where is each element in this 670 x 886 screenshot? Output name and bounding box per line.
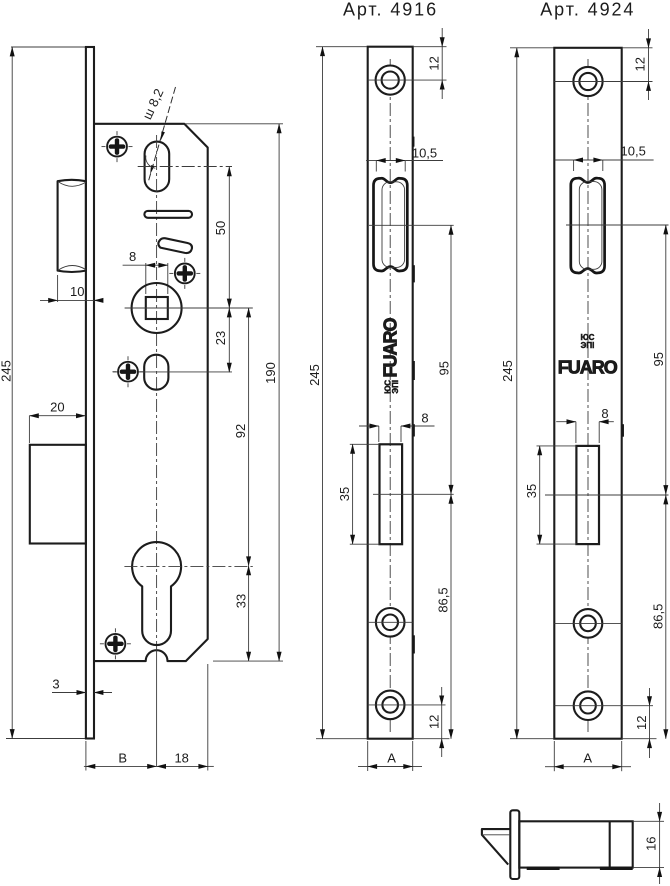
svg-text:8: 8 (421, 410, 428, 425)
svg-text:12: 12 (426, 56, 441, 70)
svg-text:86,5: 86,5 (650, 604, 665, 629)
svg-text:95: 95 (651, 352, 666, 366)
svg-text:35: 35 (524, 484, 539, 498)
svg-text:23: 23 (213, 331, 228, 345)
svg-text:ЭПI: ЭПI (391, 380, 400, 394)
svg-text:16: 16 (644, 836, 659, 850)
svg-text:8: 8 (129, 249, 136, 264)
svg-text:50: 50 (213, 221, 228, 235)
svg-text:FUARO: FUARO (381, 318, 401, 378)
svg-text:12: 12 (426, 715, 441, 729)
svg-text:18: 18 (174, 750, 188, 765)
svg-text:35: 35 (337, 487, 352, 501)
svg-text:10,5: 10,5 (412, 146, 437, 161)
svg-text:20: 20 (50, 400, 64, 415)
svg-text:ЭПI: ЭПI (581, 341, 595, 350)
svg-text:245: 245 (0, 360, 14, 382)
svg-text:Арт. 4916: Арт. 4916 (343, 0, 438, 20)
svg-text:B: B (118, 750, 127, 765)
svg-text:245: 245 (307, 364, 322, 386)
svg-text:33: 33 (233, 594, 248, 608)
svg-text:12: 12 (633, 57, 648, 71)
svg-text:95: 95 (437, 361, 452, 375)
svg-text:Арт. 4924: Арт. 4924 (540, 0, 635, 20)
svg-text:12: 12 (634, 716, 649, 730)
svg-text:10,5: 10,5 (621, 143, 646, 158)
svg-text:8: 8 (601, 406, 608, 421)
svg-text:FUARO: FUARO (558, 357, 618, 377)
svg-text:92: 92 (233, 424, 248, 438)
svg-text:190: 190 (263, 362, 278, 384)
svg-text:A: A (583, 751, 592, 766)
svg-text:3: 3 (52, 677, 59, 692)
svg-text:10: 10 (70, 284, 84, 299)
svg-text:86,5: 86,5 (436, 587, 451, 612)
svg-text:A: A (387, 750, 396, 765)
svg-text:245: 245 (500, 360, 515, 382)
